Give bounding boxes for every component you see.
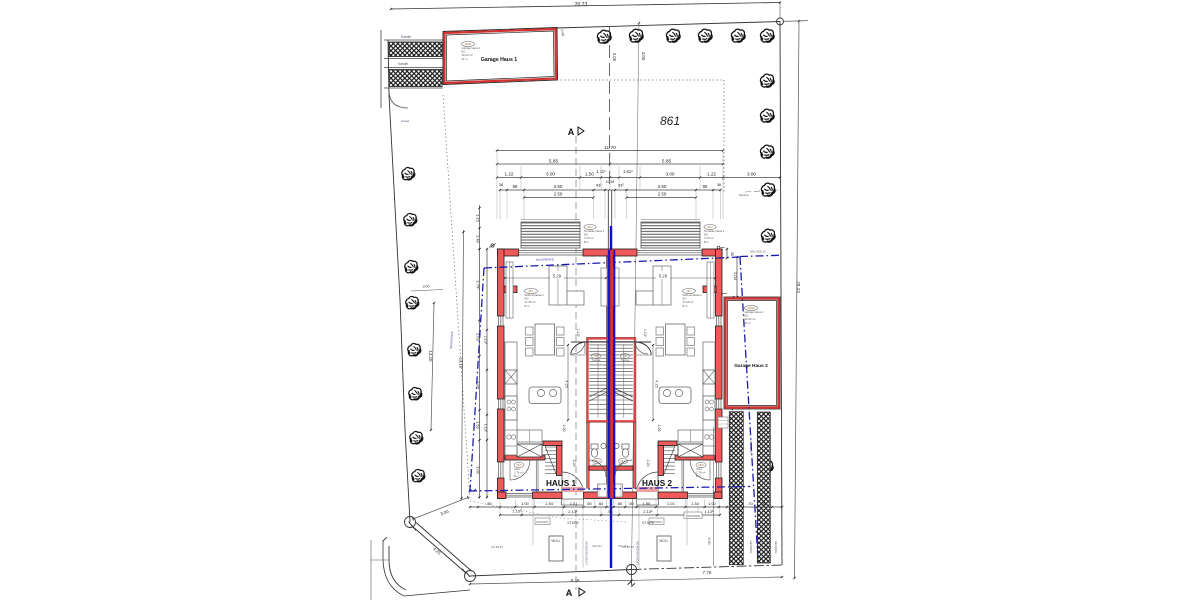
svg-text:5.29: 5.29 [659, 274, 668, 279]
svg-text:B m: B m [683, 304, 689, 308]
svg-text:HAUS 1: HAUS 1 [546, 479, 576, 488]
svg-text:36: 36 [717, 183, 721, 187]
svg-text:86: 86 [513, 184, 518, 189]
svg-text:3.50: 3.50 [658, 184, 667, 189]
svg-text:MÜLL: MÜLL [551, 539, 560, 543]
svg-text:21 m: 21 m [462, 57, 469, 61]
svg-text:1.13⁵: 1.13⁵ [513, 510, 522, 514]
svg-text:.70: .70 [747, 501, 753, 506]
svg-text:3.75⁵: 3.75⁵ [476, 280, 481, 290]
svg-text:.60: .60 [628, 501, 634, 506]
svg-text:4.25: 4.25 [655, 380, 659, 387]
svg-text:20.73: 20.73 [575, 2, 588, 8]
svg-text:Treppe: Treppe [621, 358, 630, 362]
svg-text:Garage Haus 1: Garage Haus 1 [481, 57, 517, 63]
svg-text:1.13⁵: 1.13⁵ [705, 510, 714, 514]
svg-text:1.00: 1.00 [657, 425, 661, 432]
svg-text:2.50: 2.50 [658, 192, 667, 197]
svg-text:13.10: 13.10 [428, 351, 433, 363]
svg-text:1.01: 1.01 [667, 501, 676, 506]
svg-text:Kandel: Kandel [398, 62, 408, 66]
svg-text:1.00: 1.00 [521, 501, 530, 506]
svg-text:3.00: 3.00 [546, 172, 555, 177]
svg-text:Garage Haus 2: Garage Haus 2 [734, 363, 768, 369]
svg-text:SILPUMPE: SILPUMPE [686, 514, 700, 518]
svg-text:.60: .60 [598, 501, 604, 506]
svg-text:Baulinie: Baulinie [739, 193, 749, 197]
svg-text:2.20: 2.20 [646, 460, 650, 467]
svg-text:2.50: 2.50 [554, 192, 563, 197]
svg-text:1.54: 1.54 [545, 501, 554, 506]
svg-text:.60: .60 [762, 501, 768, 506]
svg-text:1.50: 1.50 [643, 501, 652, 506]
svg-text:93⁵: 93⁵ [596, 183, 602, 188]
svg-text:36: 36 [499, 183, 503, 187]
svg-text:A: A [566, 588, 573, 598]
svg-text:BAULINIE 3,0: BAULINIE 3,0 [750, 250, 767, 254]
svg-text:1.00: 1.00 [562, 425, 566, 432]
svg-text:GEHWEG: GEHWEG [774, 541, 778, 554]
svg-text:5.85: 5.85 [549, 158, 559, 164]
svg-text:.60: .60 [586, 501, 592, 506]
svg-text:1.22: 1.22 [707, 172, 716, 177]
svg-text:1.50: 1.50 [476, 421, 481, 430]
svg-text:MÜLL: MÜLL [659, 539, 668, 543]
svg-text:NN+131: NN+131 [592, 544, 602, 548]
svg-text:KG 86.93: KG 86.93 [491, 545, 503, 549]
svg-text:4.25: 4.25 [565, 380, 569, 387]
svg-text:1.01: 1.01 [570, 501, 579, 506]
svg-text:BAUGRENZE: BAUGRENZE [536, 257, 554, 262]
svg-text:STUFE: STUFE [642, 521, 654, 525]
svg-text:SICKERSCHACHT: SICKERSCHACHT [585, 541, 589, 565]
svg-text:1.40: 1.40 [476, 235, 481, 244]
svg-text:2.13⁵: 2.13⁵ [568, 509, 578, 514]
svg-text:8.36: 8.36 [571, 578, 580, 583]
svg-text:NATURST.: NATURST. [536, 520, 549, 524]
svg-text:28.23: 28.23 [796, 281, 801, 293]
svg-text:B m: B m [525, 304, 531, 308]
svg-text:1.22: 1.22 [505, 172, 514, 177]
svg-text:21 m: 21 m [745, 321, 752, 325]
svg-text:11.70: 11.70 [604, 145, 616, 151]
svg-text:HAUS 2: HAUS 2 [642, 479, 672, 488]
svg-text:86: 86 [703, 184, 708, 189]
svg-text:.80: .80 [486, 501, 492, 506]
svg-text:30: 30 [730, 252, 734, 256]
svg-text:1.00: 1.00 [708, 501, 717, 506]
svg-text:3.00: 3.00 [476, 466, 481, 475]
svg-text:3.00: 3.00 [612, 53, 617, 62]
svg-text:5.29: 5.29 [553, 274, 562, 279]
svg-text:NN+131: NN+131 [618, 544, 628, 548]
svg-text:.60: .60 [617, 501, 623, 506]
svg-text:GEHWEG: GEHWEG [749, 541, 753, 554]
svg-text:1.15: 1.15 [476, 214, 481, 223]
svg-text:861: 861 [660, 114, 680, 128]
svg-text:3.00: 3.00 [423, 285, 430, 289]
svg-text:3.00: 3.00 [747, 172, 756, 177]
svg-text:2.13⁵: 2.13⁵ [643, 509, 653, 514]
svg-text:1.13⁵: 1.13⁵ [576, 329, 580, 338]
svg-text:2.20: 2.20 [572, 460, 576, 467]
svg-text:B m: B m [584, 240, 590, 244]
svg-text:7.76: 7.76 [703, 570, 712, 575]
svg-text:A: A [568, 127, 575, 137]
svg-text:WC: WC [619, 463, 624, 467]
svg-text:Kandel: Kandel [401, 35, 411, 39]
svg-text:3.00: 3.00 [641, 52, 646, 61]
svg-text:Amsel: Amsel [401, 119, 410, 123]
svg-text:3.30: 3.30 [707, 538, 711, 545]
svg-text:3.50: 3.50 [554, 184, 563, 189]
svg-text:1.13⁵: 1.13⁵ [484, 424, 488, 433]
svg-text:SICKERSCHACHT: SICKERSCHACHT [636, 541, 640, 565]
svg-text:13.10: 13.10 [459, 358, 464, 369]
svg-text:B m: B m [704, 240, 710, 244]
svg-text:2.13⁵: 2.13⁵ [484, 336, 488, 345]
svg-text:5.85: 5.85 [662, 158, 672, 164]
svg-text:3.00: 3.00 [666, 172, 675, 177]
svg-text:1.50: 1.50 [585, 172, 594, 177]
svg-text:STUFE: STUFE [567, 521, 579, 525]
svg-text:1.61⁵: 1.61⁵ [623, 169, 633, 174]
svg-text:WC: WC [593, 463, 598, 467]
svg-text:Treppe: Treppe [592, 358, 601, 362]
svg-text:1.13⁵: 1.13⁵ [643, 329, 647, 338]
svg-text:2.04: 2.04 [733, 272, 738, 281]
svg-text:.90: .90 [607, 510, 612, 514]
svg-text:B m: B m [514, 474, 520, 478]
svg-text:1.54: 1.54 [691, 501, 700, 506]
